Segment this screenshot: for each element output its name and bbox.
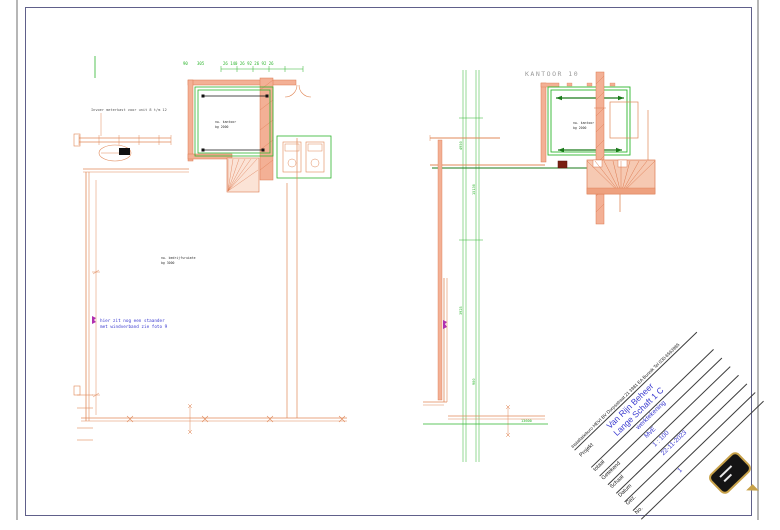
dim-text: 90: [183, 61, 188, 66]
survey-marker: [443, 320, 447, 329]
room-label: nw. kantoor: [573, 121, 594, 125]
meterkast-detail: Invoer meterkast voor unit 8 t/m 12: [74, 108, 171, 161]
survey-marker-icon: [92, 316, 96, 324]
stairs: [227, 158, 259, 192]
dimension-verticals: 4950 15130 3925 900: [459, 70, 483, 462]
dim-text: 900: [472, 379, 476, 386]
survey-marker-icon: [443, 320, 447, 329]
toilets: [277, 136, 331, 178]
area-label: KANTOOR 10: [525, 70, 579, 78]
top-dimension-row: 90 305 26 140 26 92 26 92 26: [95, 56, 303, 78]
note-line: hier zit nog een staander: [100, 318, 165, 324]
hatched-column: [594, 72, 648, 224]
hall-walls: [74, 138, 347, 440]
paper-edge-left: [16, 0, 18, 520]
dim-text: 15130: [472, 184, 476, 195]
dim-text: 13600: [521, 419, 532, 423]
dim-text: 26 140 26 92 26 92 26: [223, 61, 274, 66]
hall-label-line: nw. bedrijfsruimte: [161, 256, 196, 260]
site-note: hier zit nog een staander met windverban…: [92, 316, 168, 330]
dim-text: 3925: [459, 306, 463, 315]
room-label: bg 2000: [573, 126, 587, 130]
kantoor-room-dim-arrows: nw. kantoor bg 2000: [202, 95, 269, 152]
dim-text: 4950: [459, 141, 463, 150]
note-line: met windverband zie foto 9: [100, 324, 168, 330]
dim-text: 305: [197, 61, 205, 66]
room-label: bg 2000: [215, 125, 229, 129]
left-floor-plan: 90 305 26 140 26 92 26 92 26 nw. kantoor: [55, 50, 385, 460]
kantoor-room-dim-arrows: nw. kantoor bg 2000: [556, 96, 624, 152]
hall-label-line: bg 3000: [161, 261, 175, 265]
hall-label: nw. bedrijfsruimte bg 3000: [161, 256, 196, 265]
invoer-note: Invoer meterkast voor unit 8 t/m 12: [91, 108, 167, 112]
room-label: nw. kantoor: [215, 120, 236, 124]
title-block: Installatieburo HEVI BV Dorpsstraat 21 3…: [540, 330, 780, 530]
